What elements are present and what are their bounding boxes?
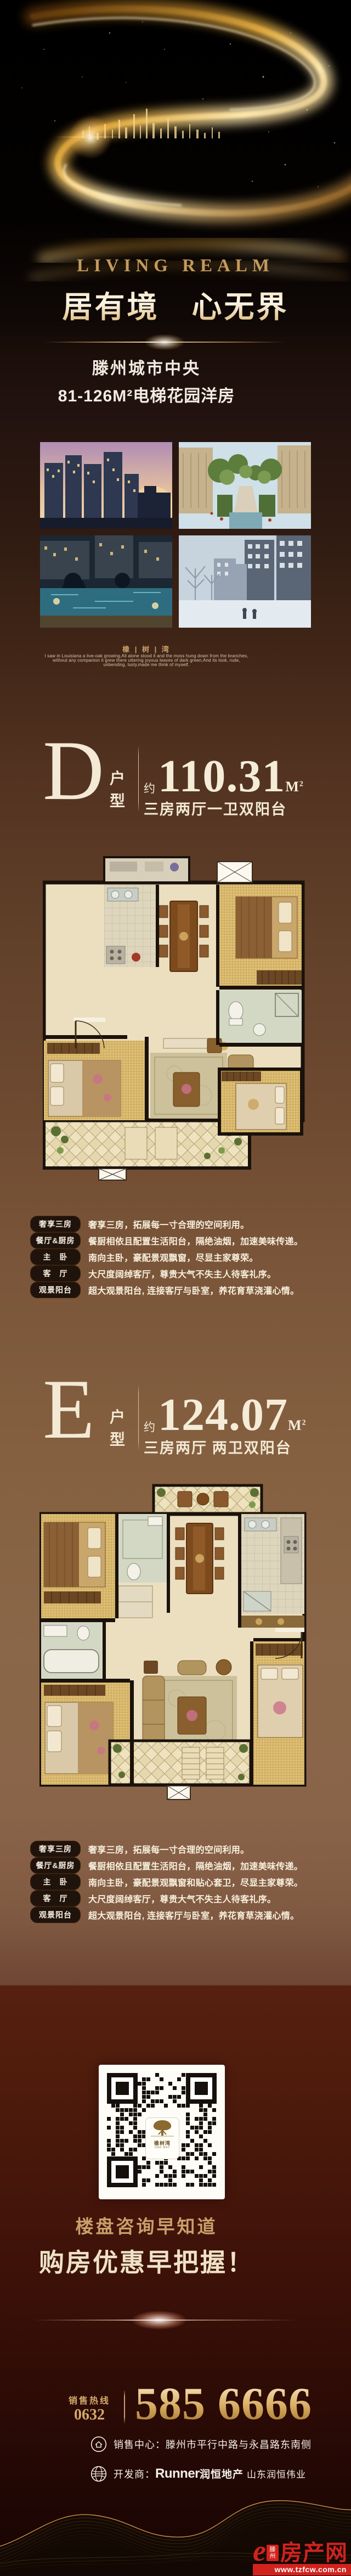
feature-row: 客 厅 大尺度阔绰客厅，尊贵大气不失主人待客礼序。	[30, 1890, 337, 1907]
developer-row: 开发商：Runner润恒地产山东润恒伟业	[90, 2466, 306, 2482]
kitchen	[104, 885, 157, 967]
feature-text: 南向主卧，豪配景观飘窗和贴心套卫，尽显主家尊荣。	[88, 1875, 303, 1888]
render-photo-night-pool	[40, 535, 172, 628]
unit-e-divider	[138, 1384, 139, 1451]
qr-finder-icon	[186, 2073, 217, 2104]
unit-d-letter: D	[43, 728, 104, 813]
project-name: 橡 | 树 | 湾	[0, 644, 293, 654]
sales-center-text: 销售中心：滕州市平行中路与永昌路东南侧	[114, 2437, 312, 2451]
floorplan-e	[39, 1484, 307, 1801]
feature-label: 餐厅&厨房	[30, 1232, 81, 1249]
hotline-area-code: 0632	[64, 2406, 115, 2424]
site-logo-name: 房产网	[280, 2544, 348, 2562]
ensuite-bath	[118, 1514, 167, 1583]
feature-text: 南向主卧，豪配景观飘窗，尽显主家尊荣。	[88, 1250, 258, 1264]
feature-text: 奢享三房，拓展每一寸合理的空间利用。	[88, 1842, 249, 1856]
balcony-top	[154, 1485, 262, 1514]
shine-divider	[44, 342, 285, 343]
feature-row: 餐厅&厨房 餐厨相依且配置生活阳台，隔绝油烟，加速美味传递。	[30, 1232, 337, 1249]
unit-e-rooms: 三房两厅 两卫双阳台	[144, 1436, 292, 1457]
globe-icon	[90, 2466, 107, 2482]
developer-text: 开发商：Runner润恒地产山东润恒伟业	[114, 2466, 306, 2482]
floorplan-d	[43, 854, 306, 1181]
hotline-label: 销售热线	[64, 2393, 115, 2406]
render-photo-winter-street	[179, 535, 311, 628]
feature-text: 奢享三房，拓展每一寸合理的空间利用。	[88, 1217, 249, 1231]
brand-poem: I saw in Louisiana a live-oak growing,Al…	[0, 654, 293, 667]
feature-label: 主 卧	[30, 1874, 81, 1890]
unit-e-letter: E	[43, 1367, 95, 1452]
hero-tagline: LIVING REALM	[0, 256, 351, 276]
hotline-label-block: 销售热线 0632	[64, 2393, 115, 2424]
bedroom-southwest	[44, 1041, 145, 1120]
bedroom-north	[219, 885, 302, 986]
poster: LIVING REALM 居有境 心无界 滕州城市中央 81-126M²电梯花园…	[0, 0, 351, 2576]
feature-label: 客 厅	[30, 1890, 81, 1907]
site-logo-city: 滕州	[267, 2545, 279, 2561]
feature-row: 观景阳台 超大观景阳台, 连接客厅与卧室，养花育草浇灌心情。	[30, 1282, 337, 1298]
feature-label: 客 厅	[30, 1265, 81, 1282]
kitchen	[241, 1514, 304, 1628]
window-marker	[99, 1169, 126, 1180]
bedroom-southeast	[253, 1641, 304, 1785]
site-logo-mark: e	[253, 2540, 266, 2562]
hotline-number: 585 6666	[135, 2381, 312, 2427]
bedroom-north	[41, 1514, 115, 1618]
oak-tree-icon	[146, 2118, 178, 2138]
promo-line1: 楼盘咨询早知道	[0, 2212, 293, 2238]
feature-text: 超大观景阳台, 连接客厅与卧室，养花育草浇灌心情。	[88, 1283, 299, 1297]
bedroom-southeast	[219, 1069, 302, 1134]
render-photo-garden-courtyard	[179, 442, 311, 529]
intro-product: 81-126M²电梯花园洋房	[0, 382, 293, 406]
feature-label: 奢享三房	[30, 1841, 81, 1857]
unit-d-rooms: 三房两厅一卫双阳台	[144, 797, 287, 819]
feature-text: 餐厨相依且配置生活阳台，隔绝油烟，加速美味传递。	[88, 1859, 303, 1872]
intro-location: 滕州城市中央	[0, 355, 293, 379]
unit-d-divider	[138, 745, 139, 812]
feature-row: 主 卧 南向主卧，豪配景观飘窗和贴心套卫，尽显主家尊荣。	[30, 1874, 337, 1890]
bathroom	[219, 990, 302, 1045]
unit-d-area: 110.31M2	[158, 753, 304, 800]
feature-label: 主 卧	[30, 1249, 81, 1265]
feature-text: 餐厨相依且配置生活阳台，隔绝油烟，加速美味传递。	[88, 1234, 303, 1247]
feature-text: 超大观景阳台, 连接客厅与卧室，养花育草浇灌心情。	[88, 1908, 299, 1921]
feature-label: 观景阳台	[30, 1282, 81, 1298]
render-photo-dusk-towers	[40, 442, 172, 529]
qr-finder-icon	[107, 2073, 138, 2104]
feature-row: 奢享三房 奢享三房，拓展每一寸合理的空间利用。	[30, 1841, 337, 1857]
window-marker	[167, 1786, 190, 1800]
unit-e-type-label: 户型	[110, 1406, 128, 1451]
hotline-divider	[124, 2390, 125, 2424]
sales-center-row: 销售中心：滕州市平行中路与永昌路东南侧	[90, 2436, 312, 2452]
feature-row: 客 厅 大尺度阔绰客厅，尊贵大气不失主人待客礼序。	[30, 1265, 337, 1282]
promo-line2: 购房优惠早把握！	[0, 2243, 293, 2279]
qr-center-logo: 橡树湾 OAK BAY	[145, 2117, 179, 2159]
feature-row: 餐厅&厨房 餐厨相依且配置生活阳台，隔绝油烟，加速美味传递。	[30, 1857, 337, 1874]
developer-company: 山东润恒伟业	[247, 2469, 306, 2480]
unit-e-approx: 约	[144, 1418, 155, 1435]
feature-row: 观景阳台 超大观景阳台, 连接客厅与卧室，养花育草浇灌心情。	[30, 1907, 337, 1923]
lens-flare-divider	[33, 2317, 296, 2323]
bathroom	[41, 1622, 103, 1680]
feature-row: 奢享三房 奢享三房，拓展每一寸合理的空间利用。	[30, 1216, 337, 1232]
feature-label: 奢享三房	[30, 1216, 81, 1232]
site-logo: e 滕州 房产网 www.tzfcw.com.cn	[253, 2540, 351, 2575]
feature-text: 大尺度阔绰客厅，尊贵大气不失主人待客礼序。	[88, 1892, 276, 1905]
developer-logo-cn: 润恒地产	[200, 2469, 244, 2480]
feature-row: 主 卧 南向主卧，豪配景观飘窗，尽显主家尊荣。	[30, 1249, 337, 1265]
house-icon	[90, 2436, 107, 2452]
developer-logo-en: Runner	[155, 2466, 200, 2481]
feature-label: 餐厅&厨房	[30, 1857, 81, 1874]
unit-e-area: 124.07M2	[158, 1392, 307, 1438]
qr-code: 橡树湾 OAK BAY	[99, 2065, 225, 2199]
hero-title: 居有境 心无界	[0, 282, 351, 326]
qr-finder-icon	[107, 2156, 138, 2187]
site-logo-url: www.tzfcw.com.cn	[253, 2564, 351, 2575]
window-marker	[217, 862, 252, 882]
feature-text: 大尺度阔绰客厅，尊贵大气不失主人待客礼序。	[88, 1267, 276, 1280]
feature-label: 观景阳台	[30, 1907, 81, 1923]
unit-d-type-label: 户型	[110, 768, 128, 812]
unit-d-approx: 约	[144, 780, 155, 796]
